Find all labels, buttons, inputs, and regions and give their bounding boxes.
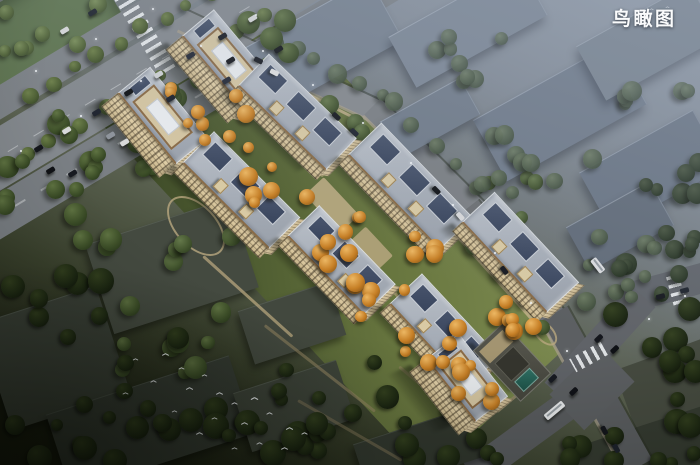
- bird: [212, 416, 218, 419]
- bird: [256, 441, 262, 445]
- bird: [281, 446, 288, 450]
- bird: [123, 391, 129, 394]
- view-title-label: 鸟瞰图: [612, 8, 677, 31]
- bird: [179, 366, 185, 369]
- bird: [232, 446, 238, 449]
- bird: [251, 396, 259, 400]
- bird: [241, 421, 248, 425]
- bird: [231, 401, 237, 405]
- bird: [196, 431, 203, 435]
- bird: [162, 352, 169, 356]
- aerial-render: 鸟瞰图: [0, 0, 700, 465]
- bird: [150, 379, 156, 383]
- bird: [301, 431, 307, 435]
- bird: [216, 391, 223, 395]
- bird-layer: [0, 0, 700, 465]
- bird: [266, 411, 272, 415]
- bird: [172, 409, 178, 412]
- bird: [202, 373, 208, 376]
- bird: [286, 426, 293, 430]
- bird: [186, 386, 193, 390]
- render-layers: [0, 0, 700, 465]
- bird: [133, 357, 139, 360]
